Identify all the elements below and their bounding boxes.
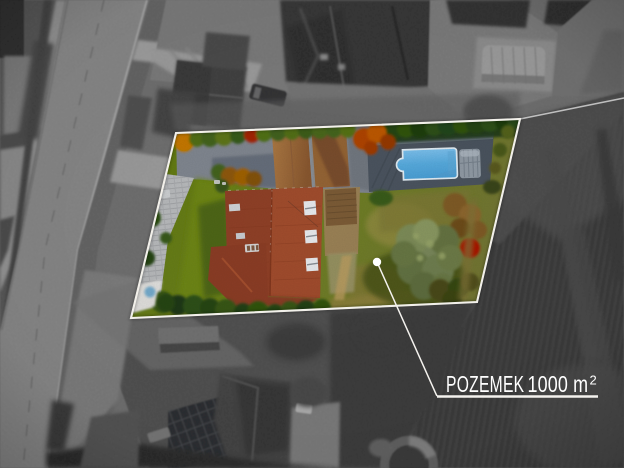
svg-text:2: 2	[590, 373, 597, 388]
svg-text:POZEMEK: POZEMEK	[446, 372, 524, 398]
svg-text:1000 m: 1000 m	[528, 372, 589, 398]
